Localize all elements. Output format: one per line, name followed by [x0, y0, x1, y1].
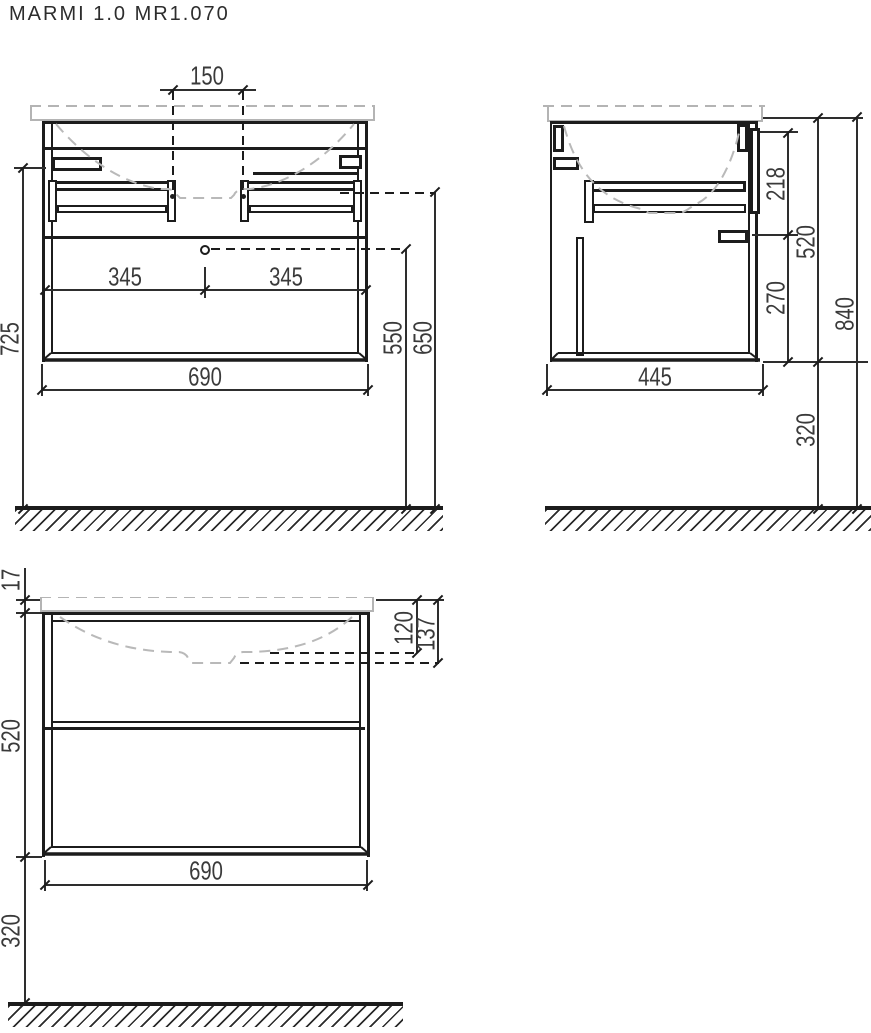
- dim-label-520: 520: [0, 719, 27, 753]
- technical-drawing: MARMI 1.0 MR1.070: [0, 0, 871, 1033]
- countertop: [40, 598, 374, 612]
- drawer-divider-thick: [45, 727, 365, 730]
- floor-hatch: [8, 1006, 403, 1027]
- cabinet-outline: [42, 612, 370, 857]
- dim-label-17: 17: [0, 569, 27, 592]
- front-view-closed: 120 137 17 520 320 690: [0, 0, 871, 1033]
- dim-ext: [16, 612, 42, 614]
- dim-ext: [16, 599, 40, 601]
- basin-inner-leader: [270, 652, 418, 654]
- dim-label-137: 137: [411, 617, 442, 651]
- drawer-divider-thin: [53, 721, 360, 723]
- cabinet-inner-wall-left: [51, 615, 53, 848]
- dim-ext: [16, 856, 42, 858]
- basin-bottom-leader: [240, 662, 439, 664]
- cabinet-inner-wall-right: [359, 615, 361, 848]
- dim-label-320: 320: [0, 914, 27, 948]
- cabinet-inner-top-line: [53, 620, 360, 622]
- dim-ext: [376, 599, 444, 601]
- dim-label-690: 690: [189, 856, 223, 887]
